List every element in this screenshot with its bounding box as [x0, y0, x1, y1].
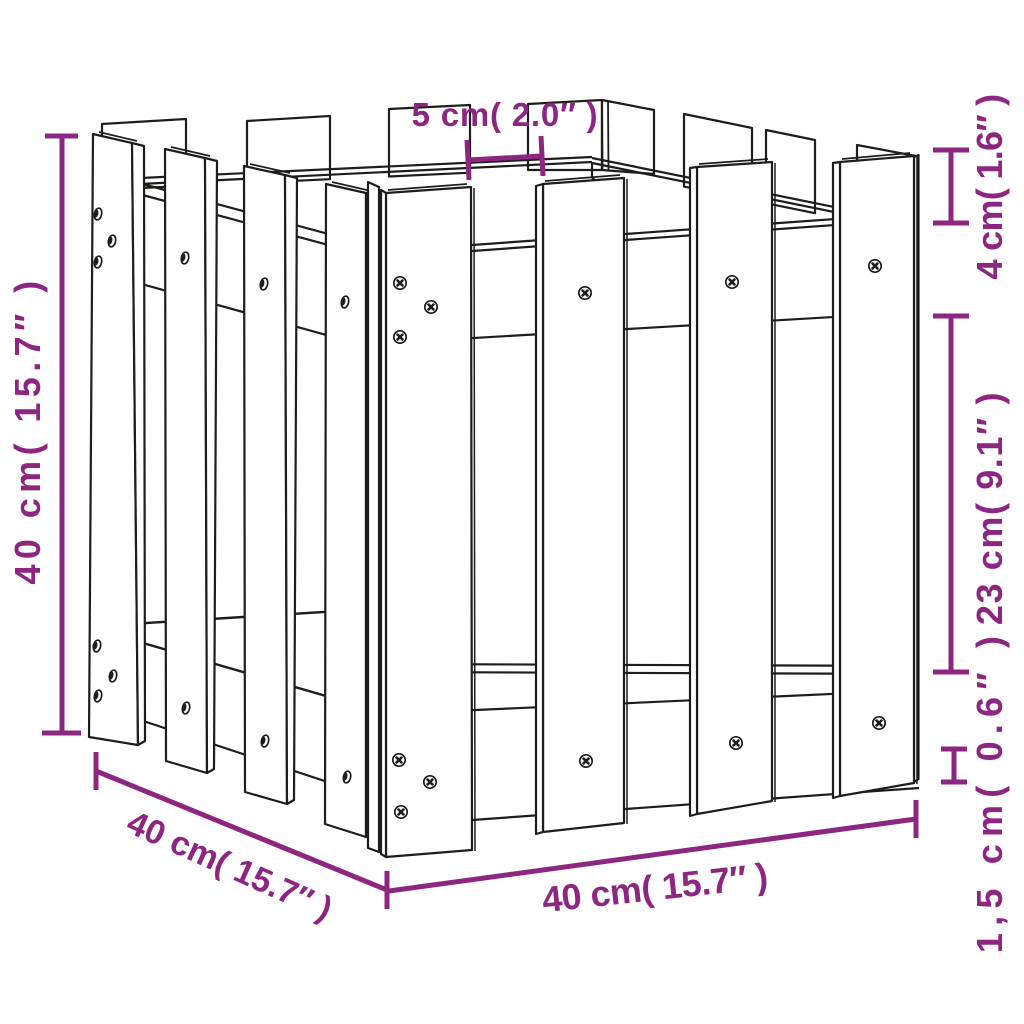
svg-text:4 cm( 1.6″ ): 4 cm( 1.6″ ): [969, 95, 1010, 280]
svg-text:40 cm( 15.7″ ): 40 cm( 15.7″ ): [7, 276, 48, 585]
svg-text:23 cm( 9.1″ ): 23 cm( 9.1″ ): [969, 391, 1010, 625]
svg-text:5 cm( 2.0″ ): 5 cm( 2.0″ ): [412, 96, 599, 133]
svg-text:1,5 cm( 0.6″ ): 1,5 cm( 0.6″ ): [969, 629, 1010, 953]
